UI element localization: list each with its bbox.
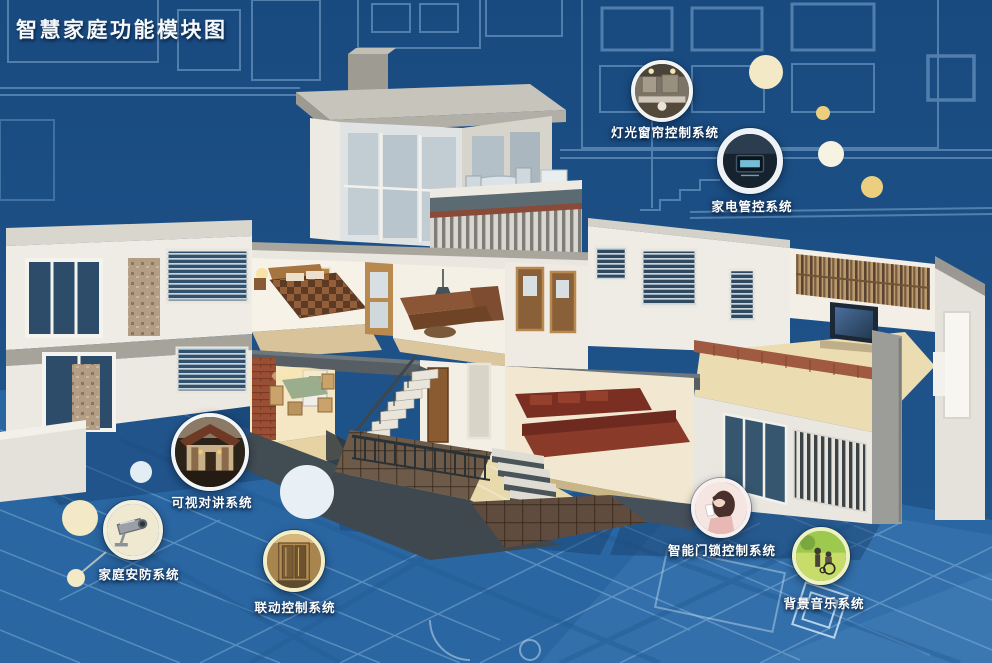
module-badge-appliance-control: [717, 128, 783, 194]
right-wing-upper-wall: [588, 218, 790, 354]
module-badge-video-intercom: [171, 413, 249, 491]
elevator-doors-photo-art: [267, 534, 321, 588]
house-entrance-photo-art: [175, 417, 245, 487]
bedroom-partition-door: [365, 262, 393, 336]
garden-wheelchair-photo-art: [796, 531, 846, 581]
right-end-wall: [933, 256, 985, 520]
module-badge-home-security: [103, 500, 163, 560]
module-label-background-music: 背景音乐系统: [744, 593, 904, 612]
house-entrance-photo: [171, 413, 249, 491]
module-label-linkage-control: 联动控制系统: [215, 597, 375, 616]
control-panel-screen-photo: [717, 128, 783, 194]
cctv-camera-photo-art: [107, 504, 159, 556]
module-badge-background-music: [792, 527, 850, 585]
module-label-smart-door-lock: 智能门锁控制系统: [642, 540, 802, 559]
bedroom-cutaway: [252, 258, 382, 358]
living-room-cutaway: [393, 264, 512, 368]
page-title: 智慧家庭功能模块图: [16, 14, 228, 44]
kitchen-downlights-photo: [631, 60, 693, 122]
elevator-doors-photo: [263, 530, 325, 592]
garden-wheelchair-photo: [792, 527, 850, 585]
module-badge-smart-door-lock: [691, 478, 751, 538]
module-label-home-security: 家庭安防系统: [59, 564, 219, 583]
upper-hall-wall: [505, 262, 588, 374]
module-label-appliance-control: 家电管控系统: [672, 196, 832, 215]
woman-with-phone-photo-art: [695, 482, 747, 534]
rooftop-chimney: [348, 48, 396, 92]
smart-home-diagram: 智慧家庭功能模块图 灯光窗帘控制系统 家电管控系统: [0, 0, 992, 663]
module-badge-linkage-control: [263, 530, 325, 592]
woman-with-phone-photo: [691, 478, 751, 538]
kitchen-downlights-photo-art: [635, 64, 689, 118]
control-panel-screen-photo-art: [723, 134, 777, 188]
module-badge-lighting-curtain: [631, 60, 693, 122]
cctv-camera-photo: [103, 500, 163, 560]
